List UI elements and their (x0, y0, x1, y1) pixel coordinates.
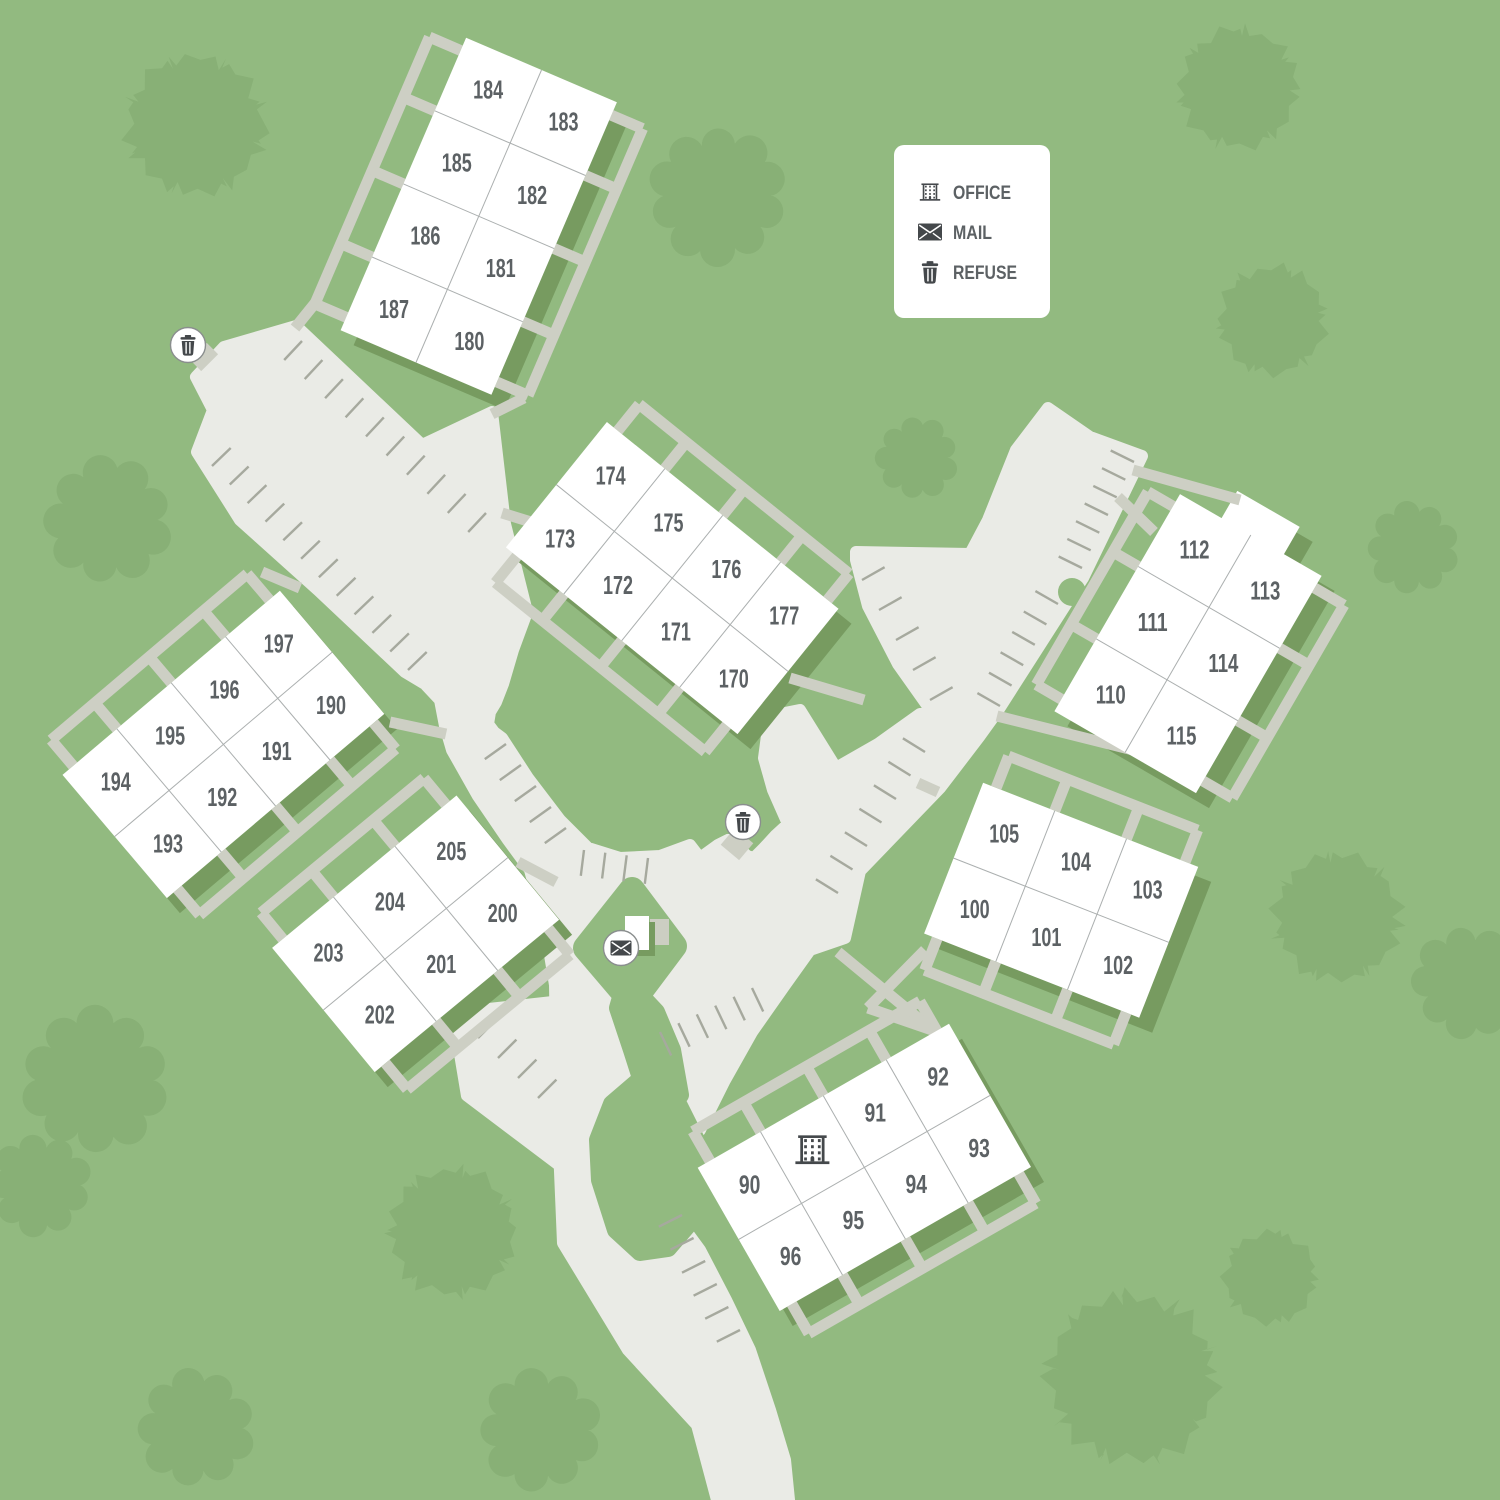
svg-text:101: 101 (1031, 922, 1061, 952)
svg-text:103: 103 (1133, 875, 1163, 905)
svg-text:90: 90 (739, 1170, 761, 1200)
svg-text:105: 105 (989, 818, 1019, 848)
svg-text:93: 93 (968, 1133, 990, 1163)
svg-text:110: 110 (1096, 680, 1126, 710)
svg-text:111: 111 (1138, 607, 1168, 637)
svg-text:175: 175 (654, 507, 684, 537)
svg-text:193: 193 (153, 828, 183, 858)
svg-text:182: 182 (517, 180, 547, 210)
svg-text:185: 185 (442, 148, 472, 178)
svg-text:200: 200 (488, 898, 518, 928)
svg-text:176: 176 (711, 554, 741, 584)
svg-text:113: 113 (1250, 576, 1280, 606)
svg-text:201: 201 (426, 949, 456, 979)
svg-text:192: 192 (207, 782, 237, 812)
svg-text:184: 184 (473, 74, 503, 104)
svg-text:181: 181 (486, 253, 516, 283)
svg-text:115: 115 (1167, 721, 1197, 751)
svg-text:186: 186 (410, 221, 440, 251)
svg-text:187: 187 (379, 294, 409, 324)
svg-text:104: 104 (1061, 847, 1091, 877)
svg-text:171: 171 (661, 617, 691, 647)
svg-text:205: 205 (436, 836, 466, 866)
svg-text:172: 172 (603, 570, 633, 600)
svg-text:112: 112 (1180, 535, 1210, 565)
svg-text:MAIL: MAIL (953, 222, 992, 244)
svg-text:100: 100 (960, 894, 990, 924)
svg-text:94: 94 (906, 1169, 928, 1199)
svg-text:174: 174 (596, 461, 626, 491)
svg-text:183: 183 (549, 107, 579, 137)
svg-text:114: 114 (1208, 648, 1238, 678)
svg-text:197: 197 (264, 629, 294, 659)
svg-text:92: 92 (927, 1062, 949, 1092)
svg-text:91: 91 (865, 1098, 887, 1128)
svg-text:204: 204 (375, 887, 405, 917)
svg-text:REFUSE: REFUSE (953, 262, 1017, 284)
svg-text:194: 194 (101, 767, 131, 797)
svg-text:177: 177 (769, 601, 799, 631)
svg-text:195: 195 (155, 721, 185, 751)
svg-text:196: 196 (210, 675, 240, 705)
svg-text:96: 96 (780, 1241, 802, 1271)
svg-text:203: 203 (314, 938, 344, 968)
svg-text:202: 202 (365, 1000, 395, 1030)
svg-text:95: 95 (843, 1205, 865, 1235)
svg-text:102: 102 (1103, 950, 1133, 980)
svg-text:173: 173 (545, 523, 575, 553)
svg-text:190: 190 (316, 690, 346, 720)
svg-text:180: 180 (454, 326, 484, 356)
svg-text:170: 170 (719, 663, 749, 693)
svg-text:OFFICE: OFFICE (953, 182, 1011, 204)
svg-text:191: 191 (262, 736, 292, 766)
